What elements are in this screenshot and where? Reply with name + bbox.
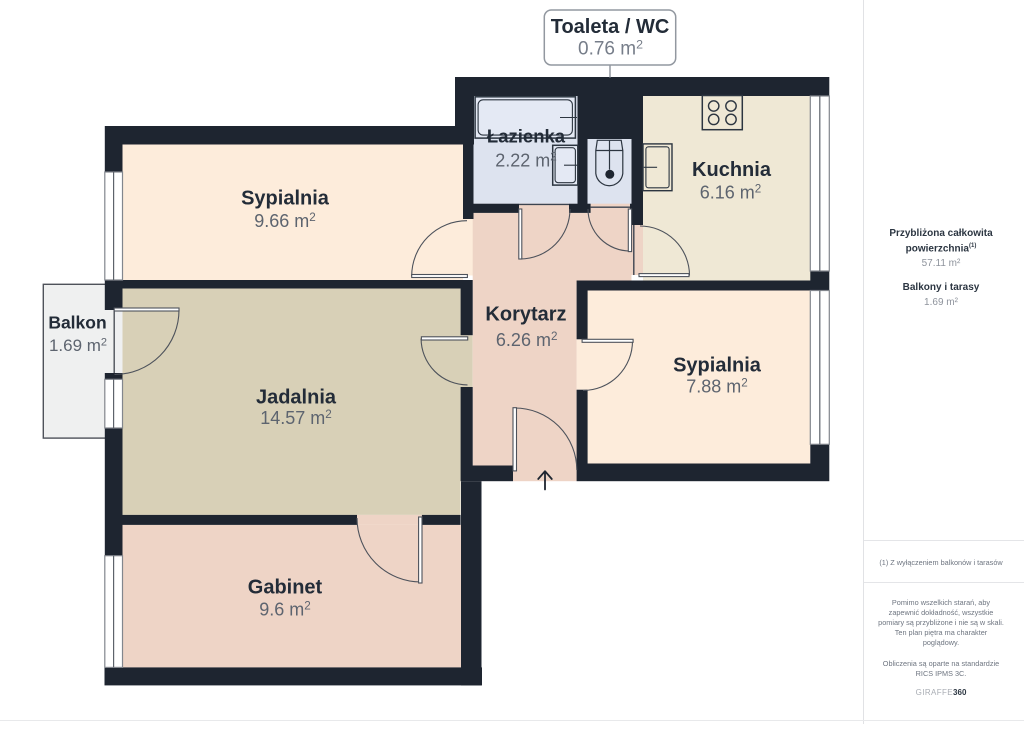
svg-text:Toaleta / WC: Toaleta / WC — [551, 16, 670, 38]
svg-text:6.26 m2: 6.26 m2 — [496, 330, 558, 350]
svg-text:Łazienka: Łazienka — [487, 126, 566, 147]
svg-text:Korytarz: Korytarz — [485, 304, 566, 326]
svg-text:2.22 m2: 2.22 m2 — [495, 151, 557, 171]
svg-text:Sypialnia: Sypialnia — [241, 188, 330, 210]
svg-text:1.69 m2: 1.69 m2 — [49, 336, 107, 355]
svg-text:Kuchnia: Kuchnia — [692, 159, 772, 181]
svg-text:7.88 m2: 7.88 m2 — [686, 377, 748, 397]
svg-text:6.16 m2: 6.16 m2 — [700, 183, 762, 203]
svg-text:Jadalnia: Jadalnia — [256, 387, 337, 409]
svg-text:Balkon: Balkon — [48, 313, 106, 333]
svg-text:Sypialnia: Sypialnia — [673, 355, 762, 377]
svg-text:9.66 m2: 9.66 m2 — [254, 211, 316, 231]
svg-text:14.57 m2: 14.57 m2 — [260, 408, 332, 428]
svg-text:0.76 m2: 0.76 m2 — [578, 37, 643, 59]
svg-text:Gabinet: Gabinet — [248, 577, 323, 599]
svg-text:9.6 m2: 9.6 m2 — [259, 600, 311, 620]
